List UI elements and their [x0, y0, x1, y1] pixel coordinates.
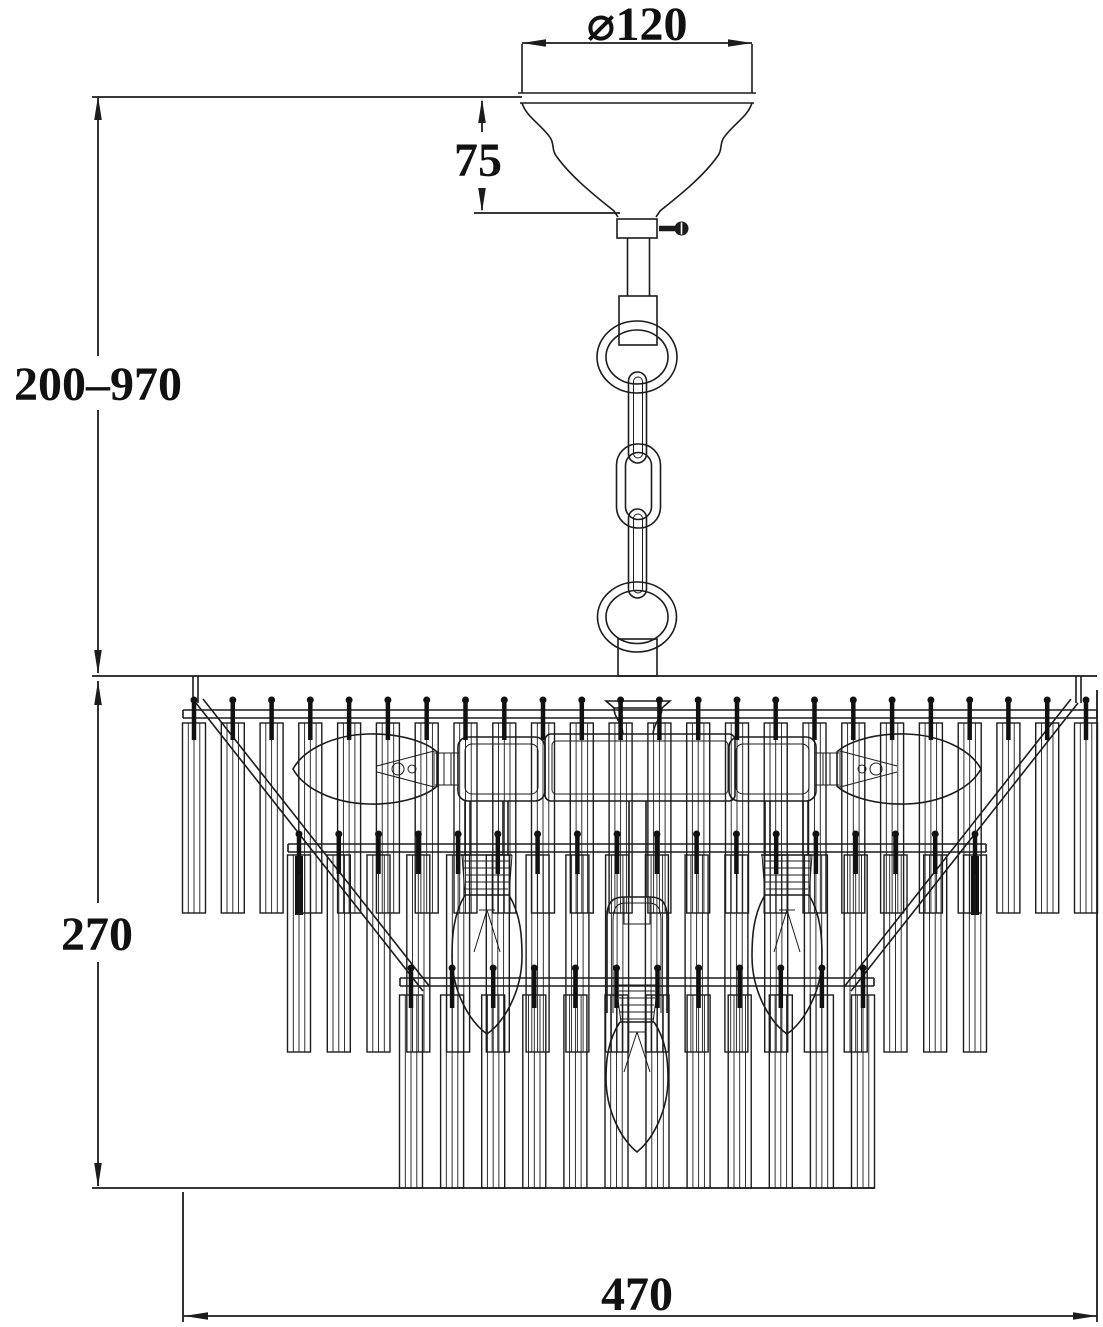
hook-pin-head [540, 697, 547, 704]
glass-rod-cluster [327, 831, 350, 1053]
candle-sleeve-inner [613, 903, 661, 1013]
glass-rod-tiers [183, 697, 1098, 1189]
glass-rod-cluster [221, 697, 244, 914]
hook-pin-head [572, 965, 579, 972]
hook-pin-head [850, 697, 857, 704]
glass-rod-cluster [454, 697, 477, 914]
hook-pin-head [531, 965, 538, 972]
hook-pin-head [574, 831, 581, 838]
hook-pin-head [415, 831, 422, 838]
chandelier-technical-drawing: ⌀120 75 200–970 270 470 [0, 0, 1103, 1327]
upper-ring [597, 321, 677, 393]
dim-label-canopy-diameter: ⌀120 [587, 0, 688, 51]
body-loop-block [618, 639, 657, 676]
dim-label-canopy-height: 75 [454, 134, 502, 187]
hook-pin-head [307, 697, 314, 704]
glass-rod-cluster [482, 965, 505, 1189]
bulb-sleeve-inner [465, 744, 538, 794]
glass-rod-cluster [288, 831, 311, 1053]
hook-pin-head [191, 697, 198, 704]
stem [628, 238, 650, 296]
hook-pin-head [449, 965, 456, 972]
hook-pin-head [423, 697, 430, 704]
filament [474, 910, 500, 952]
glass-rod-cluster [1036, 697, 1059, 914]
arrow-left-icon [522, 39, 546, 47]
hook-pin-head [229, 697, 236, 704]
arrow-right-icon [728, 39, 752, 47]
hook-pin-head [772, 697, 779, 704]
hook-pin-head [773, 831, 780, 838]
rod-tier [183, 697, 1098, 914]
hook-pin-head [653, 831, 660, 838]
hook-pin-head [693, 831, 700, 838]
arrow-down-icon [478, 188, 486, 212]
bulb-glass [837, 734, 981, 804]
hook-pin-head [811, 697, 818, 704]
hook-pin-head [578, 697, 585, 704]
support-rod-left [196, 699, 430, 991]
hook-pin-head [501, 697, 508, 704]
candle-bulb-right-horizontal [729, 734, 981, 804]
hook-pin-head [695, 965, 702, 972]
chain-link-oval [617, 444, 661, 528]
dim-label-body-height: 270 [61, 908, 133, 961]
dimension-body-diameter: 470 [183, 690, 1097, 1322]
chain-link-edge-1-inner [634, 377, 643, 458]
hook-pin-head [617, 697, 624, 704]
hook-pin-head [1044, 697, 1051, 704]
glass-rod-cluster [338, 697, 361, 914]
arrow-up-icon [94, 681, 102, 705]
hook-pin-head [736, 965, 743, 972]
canopy-nipple-block [617, 219, 657, 238]
screw-base [815, 753, 839, 785]
center-hub [545, 701, 735, 801]
canopy-bell-right [656, 103, 752, 217]
dim-label-body-diameter: 470 [601, 1268, 673, 1321]
canopy-flange [518, 93, 756, 103]
hook-pin-head [1083, 697, 1090, 704]
glass-rod-cluster [367, 831, 390, 1053]
drawing-canvas: ⌀120 75 200–970 270 470 [0, 0, 1103, 1327]
chain-link-edge-2 [629, 509, 647, 598]
bulb-glass [606, 1022, 668, 1152]
set-screw [659, 222, 689, 236]
hook-pin-head [777, 965, 784, 972]
hook-pin-head [408, 965, 415, 972]
hook-pin-head [695, 697, 702, 704]
glass-rod-cluster [183, 697, 206, 914]
dim-label-suspension-range: 200–970 [14, 358, 182, 411]
hook-pin-head [1005, 697, 1012, 704]
hook-pin-head [932, 831, 939, 838]
plate-edges [193, 676, 1081, 703]
canopy-bell-left [522, 103, 618, 217]
glass-rod-cluster [376, 697, 399, 914]
hook-pin-head [462, 697, 469, 704]
glass-rod-cluster [852, 965, 875, 1189]
hook-pin-head [734, 697, 741, 704]
glass-rod-cluster [803, 697, 826, 914]
hook-pin-head [852, 831, 859, 838]
hook-pin-head [613, 965, 620, 972]
glass-rod-cluster [764, 697, 787, 914]
arrow-up-icon [94, 96, 102, 120]
hub-box-inner [552, 741, 728, 794]
canopy-sides [522, 44, 752, 93]
glass-rod-cluster [486, 831, 509, 1053]
hook-pin-head [812, 831, 819, 838]
ceiling-canopy [518, 44, 756, 217]
hook-pin-head [892, 831, 899, 838]
filament [840, 751, 897, 787]
hook-pin-head [966, 697, 973, 704]
arrow-down-icon [94, 650, 102, 674]
hook-pin-head [455, 831, 462, 838]
glass-rod-cluster [997, 697, 1020, 914]
hook-pin-head [490, 965, 497, 972]
hub-box [545, 734, 735, 801]
hook-pin-head [654, 965, 661, 972]
glass-rod-cluster [260, 697, 283, 914]
hook-pin-head [927, 697, 934, 704]
hook-pin-head [296, 831, 303, 838]
glass-rod-cluster [400, 965, 423, 1189]
dimension-suspension-range: 200–970 [14, 96, 182, 674]
chain-assembly [597, 219, 689, 676]
hook-pin-head [335, 831, 342, 838]
glass-rod-cluster [964, 831, 987, 1053]
hook-pin-head [818, 965, 825, 972]
hook-pin-head [889, 697, 896, 704]
arrow-left-icon [184, 1312, 208, 1320]
arrow-up-icon [478, 99, 486, 123]
filament [377, 751, 434, 787]
candle-bulb-left-horizontal [293, 734, 545, 804]
hook-pin-head [494, 831, 501, 838]
glass-rod-cluster [570, 697, 593, 914]
hook-pin-head [346, 697, 353, 704]
hook-pin-head [375, 831, 382, 838]
glass-rod-cluster [687, 697, 710, 914]
hook-pin-head [656, 697, 663, 704]
tier-rail [288, 844, 986, 852]
glass-rod-cluster [726, 697, 749, 914]
hook-pin-head [733, 831, 740, 838]
glass-rod-cluster [924, 831, 947, 1053]
hook-pin-head [268, 697, 275, 704]
dimension-canopy-height: 75 [92, 97, 620, 213]
dimension-canopy-diameter: ⌀120 [522, 0, 752, 51]
filament [774, 910, 800, 952]
glass-rod-cluster [769, 965, 792, 1189]
arm [761, 801, 812, 855]
chain-link-edge-1 [629, 372, 647, 463]
support-rod-right [844, 699, 1078, 991]
ext-lines [183, 690, 1097, 1322]
hook-pin-head [614, 831, 621, 838]
chain-link-edge-2-inner [634, 514, 643, 593]
arrow-down-icon [94, 1163, 102, 1187]
glass-rod-cluster [1075, 697, 1098, 914]
glass-rod-cluster [493, 697, 516, 914]
tier-rail [183, 710, 1097, 718]
bulb-sleeve-inner [736, 744, 809, 794]
hook-pin-head [860, 965, 867, 972]
arrow-right-icon [1073, 1312, 1097, 1320]
upper-ring-inner [606, 330, 668, 384]
hook-pin-head [384, 697, 391, 704]
hook-pin-head [534, 831, 541, 838]
hook-pin-head [972, 831, 979, 838]
glass-rod-cluster [765, 831, 788, 1053]
